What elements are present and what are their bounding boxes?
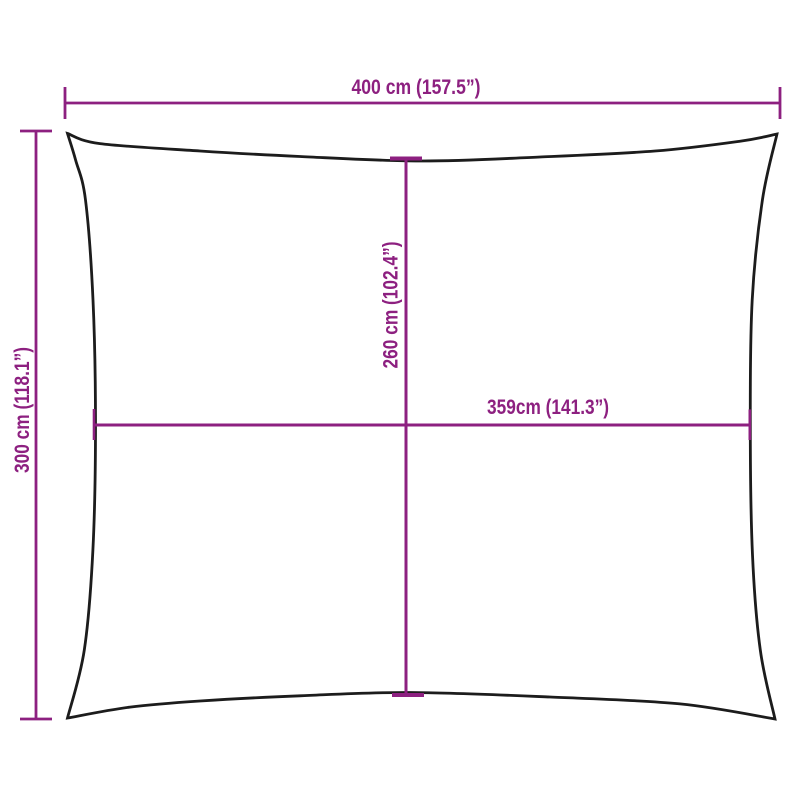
svg-text:400 cm (157.5”): 400 cm (157.5”)	[352, 76, 481, 99]
svg-text:359cm (141.3”): 359cm (141.3”)	[487, 396, 609, 419]
svg-text:300 cm (118.1”): 300 cm (118.1”)	[11, 347, 34, 473]
svg-text:260 cm (102.4”): 260 cm (102.4”)	[380, 242, 403, 369]
